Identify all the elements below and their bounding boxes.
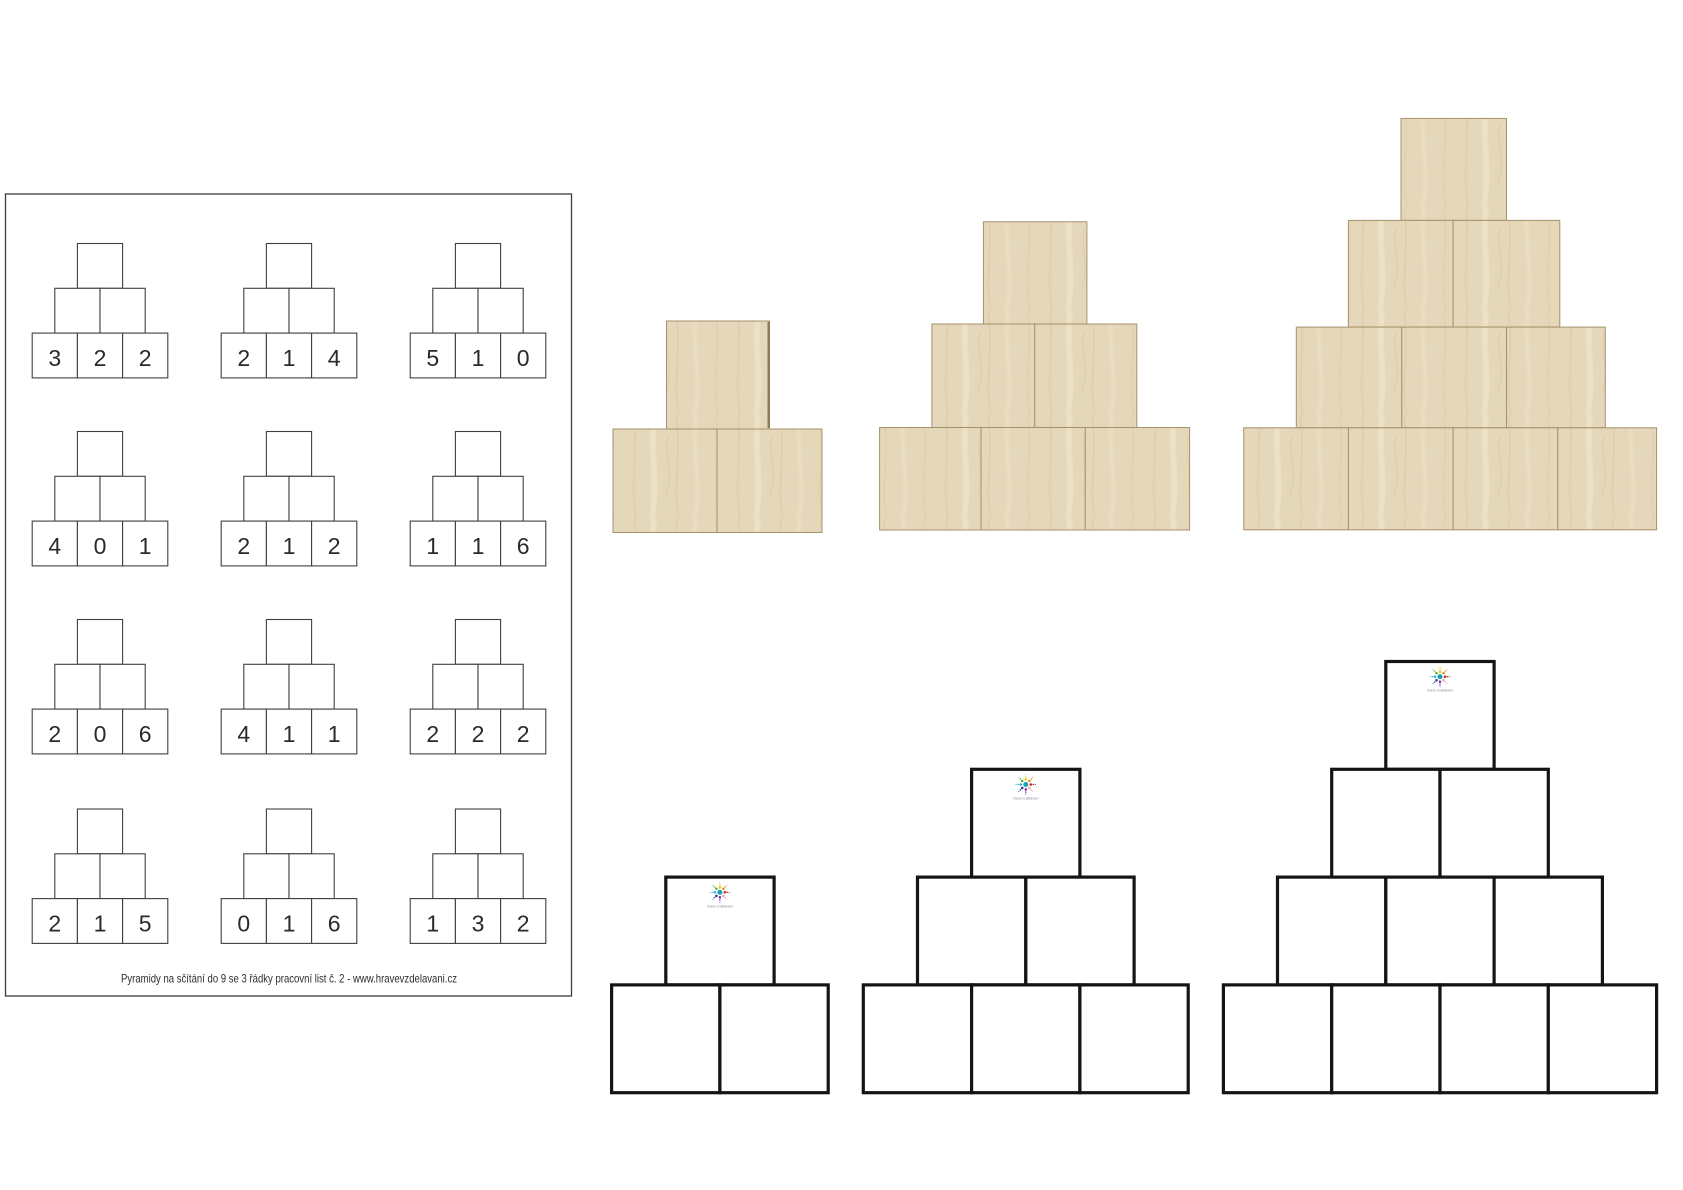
svg-text:1: 1 (94, 910, 107, 936)
svg-text:5: 5 (139, 910, 152, 936)
svg-text:0: 0 (517, 345, 530, 371)
svg-text:6: 6 (139, 721, 152, 747)
svg-text:Pyramidy na sčítání do 9 se 3: Pyramidy na sčítání do 9 se 3 řádky prac… (121, 972, 457, 986)
svg-text:4: 4 (328, 345, 341, 371)
svg-text:5: 5 (426, 345, 439, 371)
svg-text:1: 1 (426, 910, 439, 936)
svg-text:6: 6 (328, 910, 341, 936)
svg-text:hravé vzdělávání: hravé vzdělávání (1427, 689, 1453, 693)
svg-text:0: 0 (237, 910, 250, 936)
svg-text:6: 6 (517, 533, 530, 559)
svg-text:2: 2 (517, 721, 530, 747)
svg-text:2: 2 (48, 910, 61, 936)
svg-text:hravé vzdělávání: hravé vzdělávání (707, 904, 733, 908)
svg-text:1: 1 (328, 721, 341, 747)
svg-text:1: 1 (283, 533, 296, 559)
svg-text:2: 2 (139, 345, 152, 371)
svg-text:2: 2 (517, 910, 530, 936)
svg-text:hravé vzdělávání: hravé vzdělávání (1013, 797, 1039, 801)
svg-text:0: 0 (94, 721, 107, 747)
svg-text:2: 2 (472, 721, 485, 747)
svg-text:2: 2 (237, 533, 250, 559)
svg-text:1: 1 (283, 910, 296, 936)
svg-text:1: 1 (283, 721, 296, 747)
svg-text:2: 2 (328, 533, 341, 559)
svg-text:2: 2 (237, 345, 250, 371)
svg-text:4: 4 (48, 533, 61, 559)
svg-text:1: 1 (426, 533, 439, 559)
svg-text:0: 0 (94, 533, 107, 559)
svg-text:3: 3 (472, 910, 485, 936)
svg-text:1: 1 (472, 345, 485, 371)
svg-text:3: 3 (48, 345, 61, 371)
svg-text:2: 2 (426, 721, 439, 747)
svg-text:1: 1 (472, 533, 485, 559)
svg-text:1: 1 (139, 533, 152, 559)
svg-text:2: 2 (48, 721, 61, 747)
svg-text:4: 4 (237, 721, 250, 747)
svg-text:1: 1 (283, 345, 296, 371)
svg-text:2: 2 (94, 345, 107, 371)
